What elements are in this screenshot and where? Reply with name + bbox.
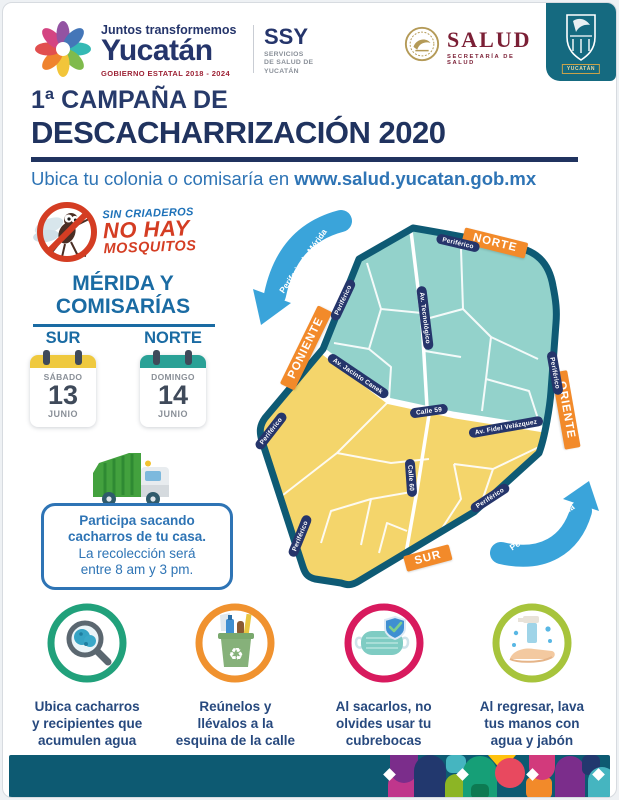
calendar-date: 14: [140, 382, 206, 409]
notice-line: La recolección será: [48, 546, 226, 562]
salud-logo-block: SALUD SECRETARÍA DE SALUD: [403, 25, 441, 63]
header-divider: [253, 25, 254, 73]
no-mosquito-emblem: SIN CRIADEROS NO HAY MOSQUITOS: [31, 199, 105, 274]
calendar-header: [30, 355, 96, 368]
subtitle-text: Ubica tu colonia o comisaría en: [31, 168, 294, 189]
notice-line: Participa sacando: [48, 513, 226, 529]
face-mask-icon: [342, 601, 426, 685]
ssy-subtitle-line: YUCATÁN: [264, 68, 313, 76]
step-gather-items: ♻ Reúnelos y llévalos a la esquina de la…: [161, 601, 309, 749]
calendar-peg: [153, 350, 160, 365]
schedule-heading-line2: COMISARÍAS: [23, 296, 223, 319]
salud-wordmark: SALUD: [447, 29, 532, 51]
calendar-month: JUNIO: [30, 409, 96, 419]
merida-zone-map: Periferia de Mérida Periferia de Mérida …: [239, 201, 617, 605]
hand-wash-icon: [490, 601, 574, 685]
caption-line: Al sacarlos, no: [310, 698, 458, 715]
caption-line: Reúnelos y: [161, 698, 309, 715]
schedule-heading: MÉRIDA Y COMISARÍAS: [23, 273, 223, 318]
zone-label-norte: NORTE: [138, 329, 208, 348]
title-underline: [31, 157, 578, 162]
caption-line: esquina de la calle: [161, 732, 309, 749]
caption-line: acumulen agua: [13, 732, 161, 749]
step-caption: Al sacarlos, no olvides usar tu cubreboc…: [310, 698, 458, 749]
campaign-title-line1: 1ª CAMPAÑA DE: [31, 87, 228, 115]
notice-line: cacharros de tu casa.: [48, 529, 226, 545]
yucatan-knot-icon: [31, 15, 95, 79]
svg-text:♻: ♻: [229, 645, 244, 665]
emblem-line3: MOSQUITOS: [103, 238, 233, 258]
caption-line: tus manos con: [458, 715, 606, 732]
emblem-text: SIN CRIADEROS NO HAY MOSQUITOS: [102, 205, 234, 258]
calendar-peg: [75, 350, 82, 365]
zone-label-sur: SUR: [28, 329, 98, 348]
step-locate-containers: Ubica cacharros y recipientes que acumul…: [13, 601, 161, 749]
subtitle-line: Ubica tu colonia o comisaría en www.salu…: [31, 168, 536, 190]
calendar-date: 13: [30, 382, 96, 409]
footer-mosaic-pattern: [330, 755, 610, 798]
calendar-header: [140, 355, 206, 368]
caption-line: cubrebocas: [310, 732, 458, 749]
caption-line: y recipientes que: [13, 715, 161, 732]
ssy-logo-block: SSY SERVICIOS DE SALUD DE YUCATÁN: [264, 26, 313, 76]
brand-term: GOBIERNO ESTATAL 2018 - 2024: [101, 69, 236, 78]
state-brand-block: Juntos transformemos Yucatán GOBIERNO ES…: [101, 23, 236, 78]
step-wash-hands: Al regresar, lava tus manos con agua y j…: [458, 601, 606, 749]
calendar-peg: [43, 350, 50, 365]
ssy-subtitle-line: DE SALUD DE: [264, 59, 313, 67]
schedule-heading-line1: MÉRIDA Y: [23, 273, 223, 296]
eagle-seal-icon: [403, 25, 441, 63]
brand-name: Yucatán: [101, 36, 236, 66]
notice-line: entre 8 am y 3 pm.: [48, 562, 226, 578]
salud-subtitle: SECRETARÍA DE SALUD: [447, 54, 532, 66]
participation-notice: Participa sacando cacharros de tu casa. …: [41, 503, 233, 590]
yucatan-state-badge: YUCATÁN: [546, 3, 616, 81]
step-caption: Ubica cacharros y recipientes que acumul…: [13, 698, 161, 749]
campaign-poster: Juntos transformemos Yucatán GOBIERNO ES…: [2, 2, 617, 798]
step-wear-mask: Al sacarlos, no olvides usar tu cubreboc…: [310, 601, 458, 749]
campaign-title-line2: DESCACHARRIZACIÓN 2020: [31, 117, 445, 150]
yucatan-government-logo: [31, 15, 95, 84]
caption-line: agua y jabón: [458, 732, 606, 749]
caption-line: Ubica cacharros: [13, 698, 161, 715]
caption-line: olvides usar tu: [310, 715, 458, 732]
caption-line: Al regresar, lava: [458, 698, 606, 715]
ssy-acronym: SSY: [264, 26, 313, 48]
mosquito-prohibition-icon: [31, 199, 105, 269]
campaign-url: www.salud.yucatan.gob.mx: [294, 168, 536, 189]
calendar-norte: DOMINGO 14 JUNIO: [140, 355, 206, 427]
recycle-bin-icon: ♻: [193, 601, 277, 685]
calendar-month: JUNIO: [140, 409, 206, 419]
caption-line: llévalos a la: [161, 715, 309, 732]
step-caption: Al regresar, lava tus manos con agua y j…: [458, 698, 606, 749]
ssy-subtitle-line: SERVICIOS: [264, 51, 313, 59]
footer-bar: [9, 755, 610, 798]
badge-label: YUCATÁN: [562, 64, 600, 74]
calendar-sur: SÁBADO 13 JUNIO: [30, 355, 96, 427]
instructions-row: Ubica cacharros y recipientes que acumul…: [3, 601, 616, 749]
schedule-underline: [33, 324, 215, 327]
magnifier-icon: [45, 601, 129, 685]
step-caption: Reúnelos y llévalos a la esquina de la c…: [161, 698, 309, 749]
ssy-subtitle: SERVICIOS DE SALUD DE YUCATÁN: [264, 51, 313, 76]
calendar-peg: [185, 350, 192, 365]
